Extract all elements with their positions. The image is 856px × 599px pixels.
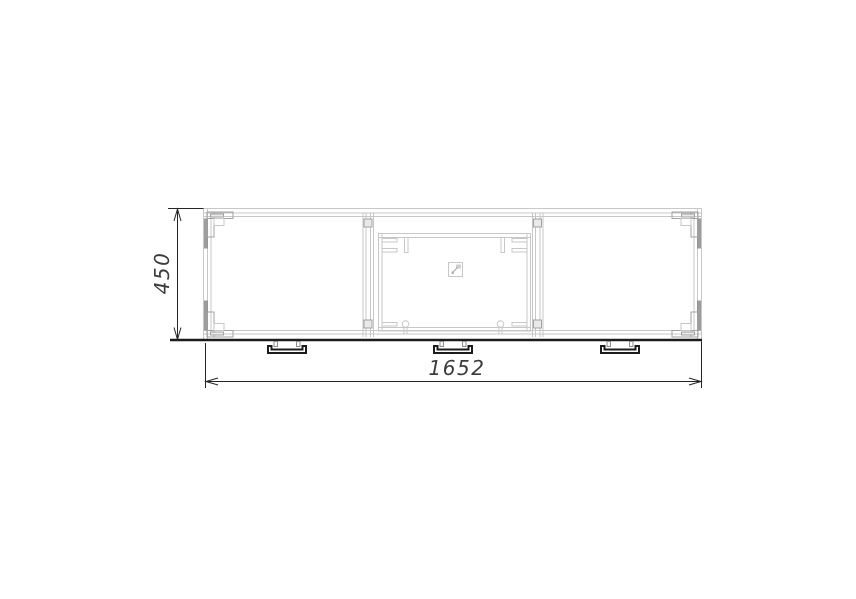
corner-bracket-top-left <box>204 212 233 249</box>
cabinet-outline <box>204 209 702 341</box>
dimension-width-label: 1652 <box>429 356 486 380</box>
connector-symbol <box>449 263 463 277</box>
corner-bracket-bottom-right <box>672 301 701 338</box>
foot-right <box>601 342 639 354</box>
divider-left <box>363 213 374 337</box>
divider-right <box>533 213 544 337</box>
dimension-width: 1652 <box>206 342 702 389</box>
foot-center <box>434 342 472 354</box>
cabinet-technical-drawing: 450 1652 <box>0 0 856 599</box>
foot-left <box>268 342 306 354</box>
corner-bracket-top-right <box>672 212 701 249</box>
drawing-canvas: 450 1652 <box>0 0 856 599</box>
dimension-height: 450 <box>150 209 204 341</box>
feet <box>268 342 639 354</box>
corner-bracket-bottom-left <box>204 301 233 338</box>
dimension-height-label: 450 <box>150 252 174 295</box>
inner-compartment <box>379 234 531 335</box>
